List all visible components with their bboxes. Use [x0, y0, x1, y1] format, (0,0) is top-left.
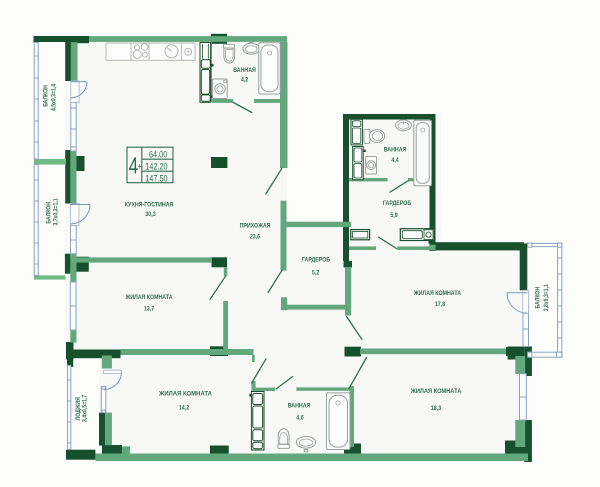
svg-text:64.00: 64.00 [149, 149, 168, 160]
svg-text:14,2: 14,2 [179, 405, 190, 412]
svg-text:+: + [138, 162, 142, 172]
svg-text:147.50: 147.50 [145, 172, 168, 183]
svg-text:ЖИЛАЯ КОМНАТА: ЖИЛАЯ КОМНАТА [158, 390, 212, 397]
svg-text:БАЛКОН: БАЛКОН [535, 287, 542, 309]
svg-text:ЖИЛАЯ КОМНАТА: ЖИЛАЯ КОМНАТА [413, 290, 462, 297]
svg-text:ПРИХОЖАЯ: ПРИХОЖАЯ [240, 223, 271, 230]
svg-text:ВАННАЯ: ВАННАЯ [233, 67, 256, 74]
svg-text:142.20: 142.20 [145, 160, 168, 171]
svg-text:17,8: 17,8 [435, 301, 446, 308]
svg-text:3,4х0,5=1,7: 3,4х0,5=1,7 [82, 395, 89, 422]
svg-text:ВАННАЯ: ВАННАЯ [384, 147, 407, 154]
svg-text:ВАННАЯ: ВАННАЯ [288, 403, 311, 410]
svg-text:БАЛКОН: БАЛКОН [43, 85, 50, 107]
svg-text:13,7: 13,7 [144, 306, 155, 313]
svg-text:3,8х0,3=1,1: 3,8х0,3=1,1 [544, 283, 551, 311]
svg-text:5,9: 5,9 [390, 212, 398, 219]
svg-text:ГАРДЕРОБ: ГАРДЕРОБ [383, 201, 412, 208]
svg-text:КУХНЯ-ГОСТИНАЯ: КУХНЯ-ГОСТИНАЯ [125, 202, 174, 209]
svg-text:30,3: 30,3 [145, 211, 156, 218]
svg-text:ЖИЛАЯ КОМНАТА: ЖИЛАЯ КОМНАТА [125, 294, 174, 301]
svg-text:3,7х0,3=1,1: 3,7х0,3=1,1 [53, 198, 60, 226]
svg-text:4,4: 4,4 [391, 158, 399, 165]
svg-text:ЖИЛАЯ КОМНАТА: ЖИЛАЯ КОМНАТА [410, 387, 462, 395]
svg-text:4,6: 4,6 [296, 415, 304, 422]
svg-text:18,3: 18,3 [431, 405, 442, 412]
svg-text:4,5х0,3=1,4: 4,5х0,3=1,4 [51, 83, 58, 111]
svg-text:4: 4 [129, 153, 138, 179]
svg-text:4,2: 4,2 [241, 77, 249, 84]
svg-text:ГАРДЕРОБ: ГАРДЕРОБ [302, 257, 331, 264]
svg-text:5,2: 5,2 [312, 270, 320, 277]
svg-text:23,6: 23,6 [250, 234, 261, 241]
svg-text:БАЛКОН: БАЛКОН [46, 202, 53, 224]
